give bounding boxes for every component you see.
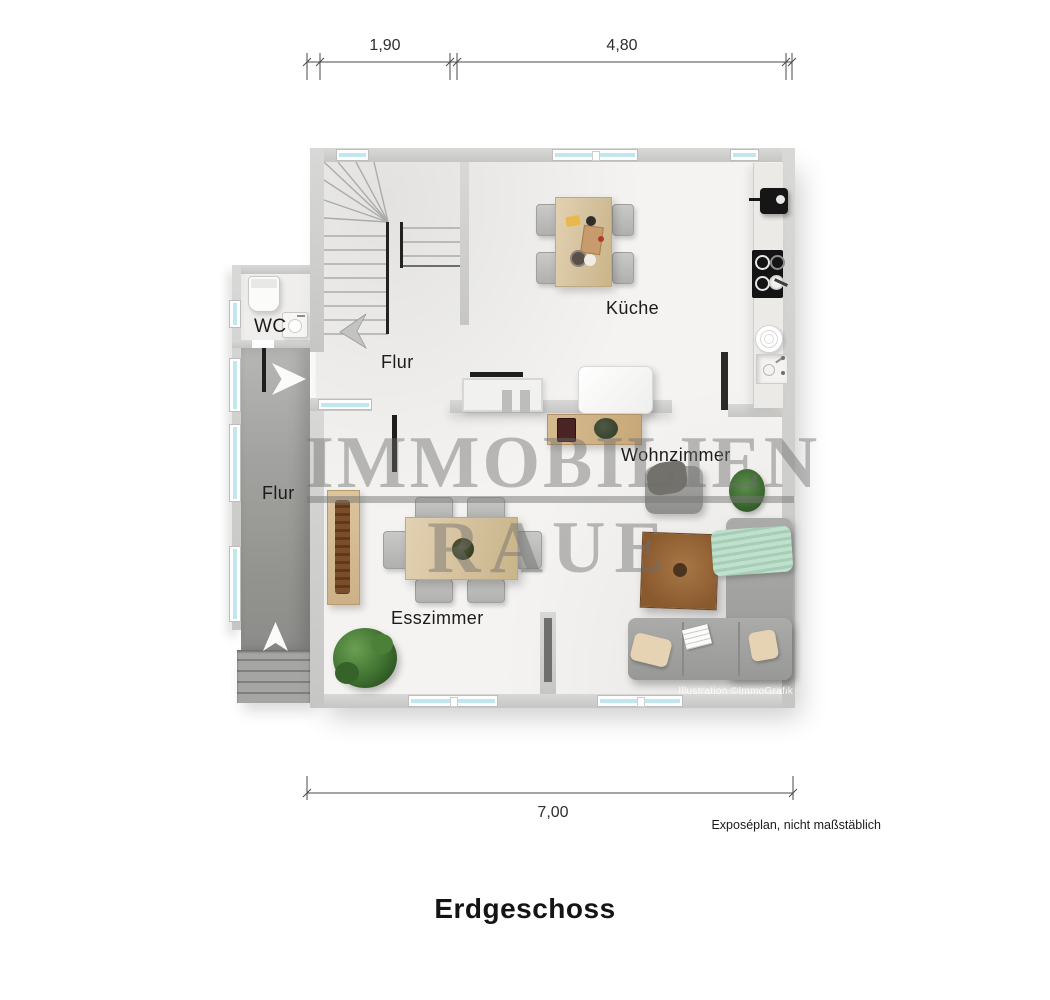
window-icon (229, 546, 241, 622)
kitchen-table-icon (555, 197, 612, 287)
floor-plan-erdgeschoss: 1,90 4,80 (0, 0, 1050, 1000)
hall-closet-icon (462, 378, 543, 412)
wc-door-icon (262, 348, 266, 392)
window-icon (408, 695, 498, 707)
wall-stub-dark (721, 352, 728, 410)
plate-stack-icon (755, 325, 783, 353)
tv-icon (578, 366, 653, 414)
room-label-kueche: Küche (606, 298, 659, 319)
stair-direction-arrow-icon (340, 314, 366, 348)
room-label-wohnzimmer: Wohnzimmer (621, 445, 731, 466)
closet-door-icon (470, 372, 523, 377)
plant-icon (594, 418, 618, 439)
wall-hall-kitchen (460, 162, 469, 325)
dining-door-icon (392, 415, 397, 472)
window-icon (552, 149, 638, 161)
centerpiece-icon (452, 538, 474, 560)
window-icon (336, 149, 369, 161)
blanket-icon (710, 525, 793, 576)
espresso-machine-icon (557, 418, 576, 442)
chair-icon (612, 252, 634, 284)
dimension-value-top-right: 4,80 (606, 37, 637, 54)
scale-disclaimer: Exposéplan, nicht maßstäblich (711, 818, 881, 832)
plant-icon (729, 469, 765, 512)
window-icon (229, 424, 241, 502)
annex-wall-top (232, 265, 310, 274)
wall-left-upper (310, 148, 324, 352)
dimension-value-bottom: 7,00 (537, 804, 568, 821)
room-label-flur-entry: Flur (262, 483, 295, 504)
room-label-esszimmer: Esszimmer (391, 608, 484, 629)
window-icon (229, 358, 241, 412)
coffee-table-icon (640, 532, 720, 611)
cooktop-icon (752, 250, 783, 298)
entry-steps-icon (237, 650, 310, 703)
interior-window-icon (318, 399, 372, 410)
wall-left-lower (310, 398, 324, 708)
chair-icon (516, 531, 542, 569)
room-label-wc: WC (254, 316, 286, 338)
pillow-icon (748, 629, 780, 662)
toilet-icon (248, 276, 280, 312)
wc-wall-bottom-right (274, 340, 310, 348)
dimension-value-top-left: 1,90 (369, 37, 400, 54)
decor-ladder-icon (335, 500, 350, 594)
chair-icon (612, 204, 634, 236)
sliding-door-icon (544, 618, 552, 682)
dimension-line-top: 1,90 4,80 (295, 28, 805, 88)
dining-table-icon (405, 517, 518, 580)
sideboard-icon (327, 490, 360, 605)
chair-icon (415, 579, 453, 603)
illustration-credit: Illustration ©ImmoGrafik (678, 686, 793, 697)
chair-icon (467, 579, 505, 603)
window-icon (229, 300, 241, 328)
armchair-icon (645, 466, 703, 514)
page-title: Erdgeschoss (0, 893, 1050, 925)
kitchen-sink-icon (756, 354, 788, 384)
room-label-flur-main: Flur (381, 352, 414, 373)
stairs-icon (324, 162, 460, 360)
window-icon (730, 149, 759, 161)
wc-wall-bottom-left (232, 340, 252, 348)
plant-icon (333, 628, 397, 688)
lowboard-icon (547, 414, 642, 445)
coffee-machine-icon (760, 188, 788, 214)
window-icon (597, 695, 683, 707)
